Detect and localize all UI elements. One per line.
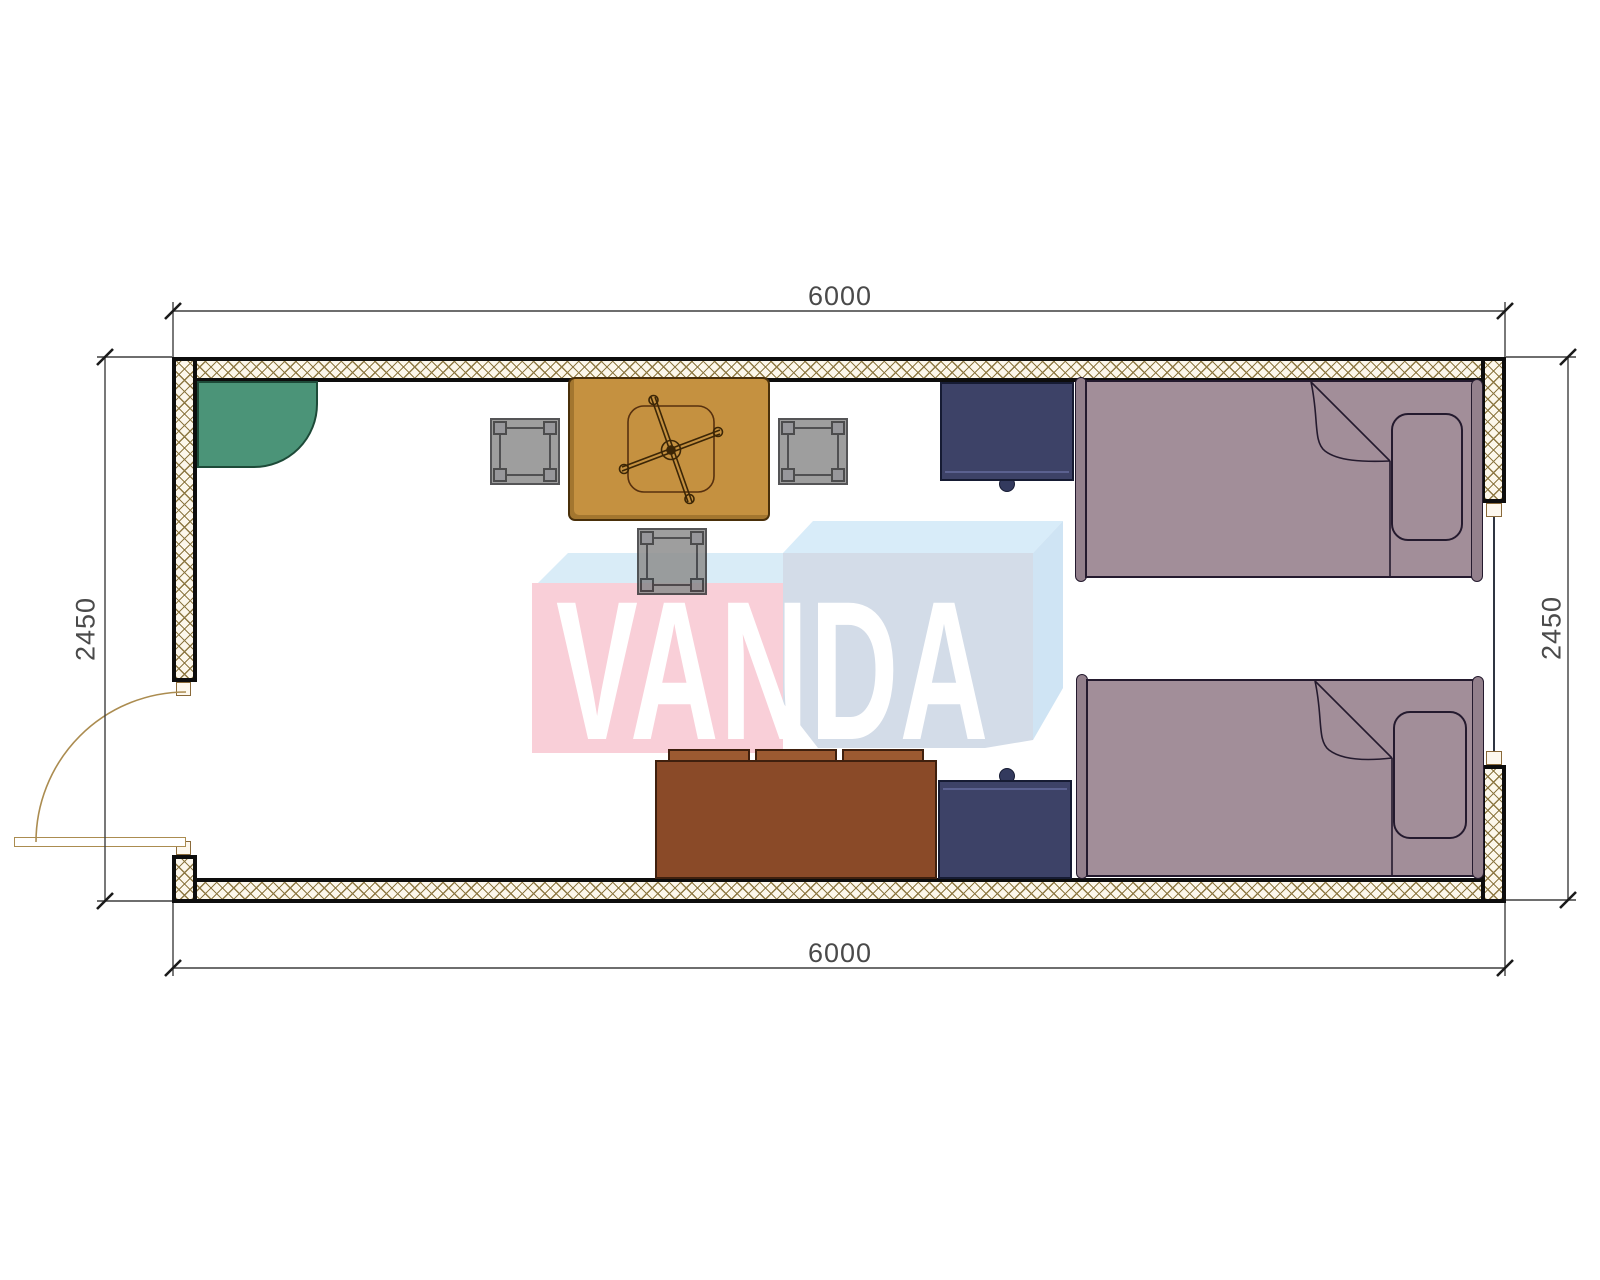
stool-leg [493, 421, 507, 435]
stool-leg [543, 421, 557, 435]
window-jamb-bottom [1486, 751, 1502, 765]
wall-right-upper [1481, 357, 1506, 503]
nightstand-drawer-line [945, 471, 1069, 473]
bed-footboard [1472, 676, 1484, 879]
dining-table [568, 377, 770, 521]
stool-leg [831, 468, 845, 482]
watermark-blue-top-face [783, 521, 1063, 553]
stool-left [490, 418, 560, 485]
stool-bottom [637, 528, 707, 595]
bed-pillow [1393, 711, 1467, 839]
stool-leg [781, 468, 795, 482]
wall-top [172, 357, 1506, 382]
wall-left-upper [172, 357, 197, 682]
stool-right [778, 418, 848, 485]
stool-leg [640, 531, 654, 545]
floor-plan-canvas: VANDA [0, 0, 1600, 1280]
wall-right-lower [1481, 765, 1506, 903]
stool-leg [781, 421, 795, 435]
dim-label-right: 2450 [1537, 596, 1568, 660]
dim-label-top: 6000 [740, 281, 940, 312]
nightstand-bottom [938, 780, 1072, 879]
door-leaf [14, 837, 186, 847]
door-jamb-top [176, 682, 191, 696]
stool-leg [831, 421, 845, 435]
bed-footboard [1471, 379, 1483, 582]
watermark-text: VANDA [556, 572, 990, 770]
stool-leg [690, 578, 704, 592]
stool-leg [640, 578, 654, 592]
watermark-blue-side-face [1033, 521, 1063, 740]
window-glass-line [1493, 517, 1495, 751]
nightstand-top [940, 382, 1074, 481]
door-swing-arc [36, 692, 186, 842]
corner-basin [197, 381, 318, 468]
stool-leg [690, 531, 704, 545]
stool-leg [543, 468, 557, 482]
wall-bottom [172, 878, 1506, 903]
wall-left-stub [172, 855, 197, 903]
sofa [655, 760, 937, 879]
nightstand-drawer-line [943, 788, 1067, 790]
stool-leg [493, 468, 507, 482]
bed-pillow [1391, 413, 1463, 541]
dim-label-left: 2450 [71, 597, 102, 661]
window-jamb-top [1486, 503, 1502, 517]
dim-label-bottom: 6000 [740, 938, 940, 969]
